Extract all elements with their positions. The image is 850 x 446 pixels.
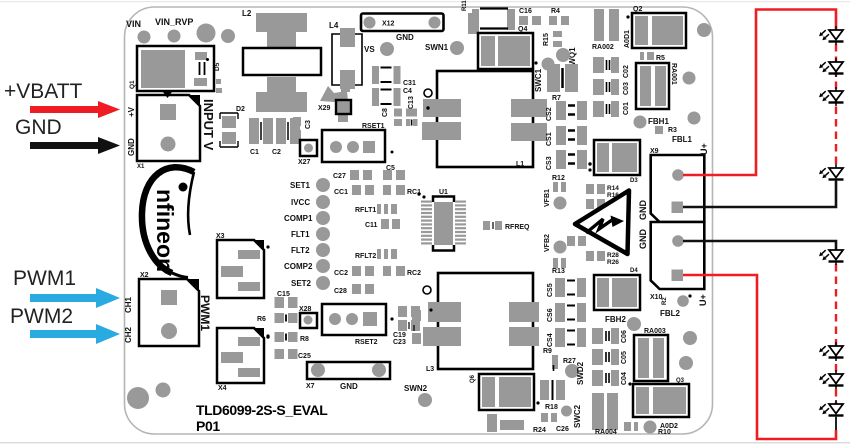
svg-text:COMP2: COMP2: [284, 262, 313, 271]
svg-text:X27: X27: [298, 159, 311, 166]
svg-text:C15: C15: [277, 291, 290, 298]
svg-text:CS2: CS2: [546, 107, 553, 121]
svg-text:R3: R3: [668, 127, 677, 134]
svg-text:C01: C01: [623, 102, 630, 115]
svg-text:C8: C8: [382, 108, 389, 117]
svg-text:VIN_RVP: VIN_RVP: [155, 17, 193, 27]
svg-text:X10: X10: [650, 294, 663, 301]
svg-text:C3: C3: [305, 120, 312, 129]
svg-text:C04: C04: [621, 372, 628, 385]
svg-text:FBH2: FBH2: [605, 315, 626, 324]
svg-text:CS5: CS5: [547, 283, 554, 297]
svg-text:CS6: CS6: [547, 308, 554, 322]
svg-text:C03: C03: [623, 82, 630, 95]
svg-text:R6: R6: [257, 316, 266, 323]
svg-text:A0D1: A0D1: [624, 30, 631, 48]
svg-text:U+: U+: [699, 143, 709, 155]
svg-text:CC2: CC2: [334, 270, 348, 277]
svg-text:VFB2: VFB2: [544, 234, 551, 252]
svg-text:FBH1: FBH1: [648, 117, 669, 126]
svg-text:R14: R14: [607, 185, 619, 192]
svg-text:X4: X4: [218, 385, 227, 392]
svg-text:INPUT V: INPUT V: [201, 99, 216, 151]
svg-text:R8: R8: [300, 336, 309, 343]
svg-text:C28: C28: [334, 288, 347, 295]
svg-text:R5: R5: [656, 55, 665, 62]
svg-text:RA001: RA001: [670, 63, 677, 85]
svg-text:C27: C27: [333, 173, 346, 180]
svg-text:GND: GND: [396, 33, 414, 42]
svg-text:R11: R11: [462, 0, 468, 11]
svg-text:X29: X29: [318, 105, 331, 112]
svg-text:C2: C2: [272, 149, 281, 156]
svg-text:GND: GND: [340, 382, 358, 391]
svg-text:R4: R4: [551, 8, 560, 15]
svg-text:L3: L3: [426, 366, 434, 373]
svg-text:FBL1: FBL1: [672, 135, 693, 144]
svg-text:SWN1: SWN1: [425, 43, 449, 52]
svg-text:RC2: RC2: [407, 270, 421, 277]
svg-text:COMP1: COMP1: [284, 214, 313, 223]
svg-text:CC1: CC1: [334, 189, 348, 196]
svg-text:R26: R26: [607, 259, 619, 266]
svg-text:SET2: SET2: [291, 279, 312, 288]
svg-text:IVCC: IVCC: [291, 198, 310, 207]
svg-text:R2: R2: [662, 297, 668, 305]
svg-text:RA002: RA002: [592, 44, 614, 51]
svg-text:L4: L4: [329, 21, 339, 30]
svg-text:SWD2: SWD2: [576, 361, 585, 385]
svg-text:R24: R24: [533, 427, 546, 434]
svg-text:Q1: Q1: [129, 80, 136, 89]
svg-text:X12: X12: [382, 21, 395, 28]
svg-text:C13: C13: [408, 96, 415, 109]
svg-text:C19: C19: [393, 332, 406, 339]
svg-text:GND: GND: [638, 229, 648, 250]
svg-text:U1: U1: [439, 189, 448, 196]
svg-text:R9: R9: [543, 348, 552, 355]
svg-text:R28: R28: [607, 252, 619, 259]
svg-text:C25: C25: [298, 353, 311, 360]
svg-text:R15: R15: [543, 33, 550, 46]
svg-text:RSET2: RSET2: [355, 339, 378, 346]
svg-text:C11: C11: [365, 222, 378, 229]
svg-text:CH1: CH1: [124, 296, 133, 313]
svg-text:RFLT1: RFLT1: [355, 207, 376, 214]
svg-text:+VBATT: +VBATT: [4, 80, 83, 103]
svg-text:U+: U+: [698, 294, 708, 306]
svg-text:R10: R10: [658, 429, 671, 436]
svg-text:C16: C16: [519, 8, 532, 15]
svg-text:SWC1: SWC1: [534, 68, 543, 92]
svg-text:GND: GND: [638, 200, 648, 221]
svg-text:R27: R27: [563, 358, 576, 365]
svg-text:VIN: VIN: [126, 19, 141, 29]
svg-text:RFREQ: RFREQ: [505, 224, 530, 231]
svg-text:FLT2: FLT2: [291, 246, 310, 255]
svg-text:GND: GND: [127, 138, 136, 156]
svg-text:C05: C05: [621, 351, 628, 364]
svg-text:TLD6099-2S-S_EVAL: TLD6099-2S-S_EVAL: [196, 402, 328, 418]
svg-text:C4: C4: [403, 88, 412, 95]
svg-text:nfineon: nfineon: [152, 189, 178, 272]
svg-text:D4: D4: [630, 268, 638, 274]
svg-text:C02: C02: [623, 65, 630, 78]
svg-text:PWM1: PWM1: [198, 295, 212, 331]
svg-text:FBL2: FBL2: [660, 309, 681, 318]
svg-text:L1: L1: [516, 161, 524, 168]
svg-text:R7: R7: [552, 95, 561, 102]
svg-text:C23: C23: [393, 339, 406, 346]
svg-text:SWC2: SWC2: [573, 404, 582, 428]
svg-text:X1: X1: [137, 164, 145, 170]
svg-text:P01: P01: [196, 418, 220, 434]
svg-text:C1: C1: [250, 149, 259, 156]
svg-text:C06: C06: [621, 330, 628, 343]
svg-text:FLT1: FLT1: [291, 230, 310, 239]
svg-text:PWM1: PWM1: [13, 267, 76, 290]
svg-text:+V: +V: [127, 106, 136, 117]
svg-text:SET1: SET1: [290, 181, 311, 190]
svg-text:CH2: CH2: [124, 326, 133, 343]
svg-text:R18: R18: [545, 404, 558, 411]
svg-text:VFB1: VFB1: [544, 189, 551, 207]
svg-text:PWM2: PWM2: [10, 305, 73, 328]
svg-text:Q6: Q6: [470, 374, 476, 383]
svg-text:L2: L2: [242, 9, 252, 18]
svg-text:D2: D2: [236, 106, 245, 113]
svg-text:C31: C31: [403, 80, 416, 87]
svg-text:CS4: CS4: [547, 333, 554, 347]
svg-text:C26: C26: [556, 426, 569, 433]
svg-text:SWN2: SWN2: [404, 384, 428, 393]
svg-text:R12: R12: [552, 175, 565, 182]
svg-text:D3: D3: [630, 178, 638, 184]
svg-text:RFLT2: RFLT2: [355, 253, 376, 260]
svg-text:VS: VS: [364, 45, 375, 54]
svg-text:D5: D5: [214, 62, 221, 71]
svg-text:CS3: CS3: [546, 156, 553, 170]
svg-text:CS1: CS1: [546, 132, 553, 146]
svg-text:X7: X7: [306, 383, 315, 390]
svg-text:RA004: RA004: [595, 429, 617, 436]
svg-text:R13: R13: [552, 268, 565, 275]
svg-text:GND: GND: [15, 116, 62, 139]
